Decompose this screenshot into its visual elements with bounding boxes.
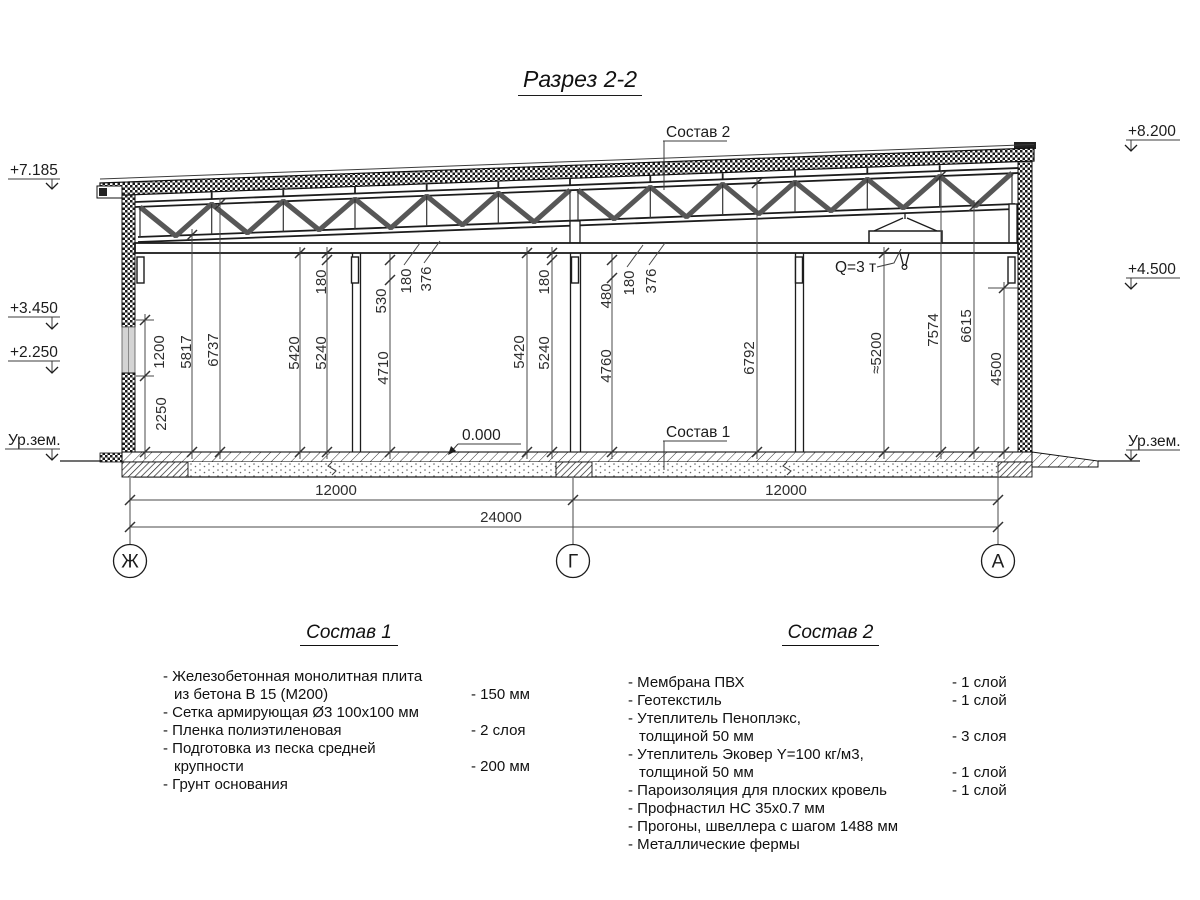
list-item: - Мембрана ПВХ - 1 слой: [628, 674, 1008, 692]
dim-text: 1200: [151, 335, 168, 368]
axis-markers: Ж Г А: [114, 545, 1015, 578]
zero-level-label: 0.000: [462, 427, 501, 444]
column-anchor: [1008, 257, 1015, 283]
sostav2-title: Состав 2: [653, 624, 1008, 642]
elevation-label: Ур.зем.: [1128, 433, 1181, 450]
list-item: - Подготовка из песка средней крупности …: [163, 740, 535, 776]
section-sheet: Разрез 2-2: [0, 0, 1200, 900]
crane-capacity-label: Q=3 т: [835, 259, 876, 276]
floor-slab: [122, 452, 1098, 477]
left-wall: [122, 192, 135, 452]
truss-right: [578, 173, 1012, 221]
axis-label: Ж: [121, 552, 139, 573]
dim-text: 530: [373, 288, 390, 313]
sostav1-list: Состав 1 - Железобетонная монолитная пли…: [163, 624, 535, 794]
list-item: - Железобетонная монолитная плита из бет…: [163, 668, 535, 704]
list-item: - Утеплитель Эковер Y=100 кг/м3, толщино…: [628, 746, 1008, 782]
callout-label: Состав 2: [666, 124, 730, 141]
axis-label: Г: [568, 552, 578, 573]
elevation-mark-4500: +4.500: [1125, 261, 1180, 289]
elevation-mark-3450: +3.450: [8, 300, 60, 329]
dim-text: 376: [418, 266, 435, 291]
right-wall: [1014, 142, 1036, 452]
dim-text: 2250: [153, 397, 170, 430]
dim-text: 180: [398, 268, 415, 293]
dim-text: 5420: [286, 336, 303, 369]
column-anchor: [572, 257, 579, 283]
horizontal-dimensions: 12000 12000 24000: [125, 472, 1003, 544]
dim-text: 4760: [598, 349, 615, 382]
dim-text: 4500: [988, 352, 1005, 385]
list-item: - Пленка полиэтиленовая - 2 слоя: [163, 722, 535, 740]
ramp: [1032, 452, 1098, 467]
elevation-mark-ground-right: Ур.зем.: [1125, 433, 1181, 460]
elevation-label: +7.185: [10, 162, 58, 179]
elevation-mark-ground-left: Ур.зем.: [5, 432, 61, 460]
zero-level-mark: 0.000: [448, 427, 521, 455]
dim-text: 5420: [511, 335, 528, 368]
callout-label: Состав 1: [666, 424, 730, 441]
dim-text: 180: [621, 270, 638, 295]
dim-text: 180: [536, 269, 553, 294]
elevation-label: +3.450: [10, 300, 58, 317]
dim-text: 480: [598, 283, 615, 308]
elevation-label: +2.250: [10, 344, 58, 361]
dim-text: 7574: [925, 313, 942, 346]
list-item: - Профнастил НС 35х0.7 мм: [628, 800, 1008, 818]
column-anchor: [352, 257, 359, 283]
dim-text: 376: [643, 268, 660, 293]
list-item: - Прогоны, швеллера с шагом 1488 мм: [628, 818, 1008, 836]
dim-text: 12000: [315, 482, 357, 499]
axis-label: А: [992, 552, 1005, 573]
dim-text: 6615: [958, 309, 975, 342]
dim-text: 24000: [480, 509, 522, 526]
truss-left: [140, 190, 570, 237]
dim-text: ≈5200: [868, 332, 885, 374]
list-item: - Грунт основания: [163, 776, 535, 794]
dim-text: 4710: [375, 351, 392, 384]
sostav1-title: Состав 1: [163, 624, 535, 642]
dim-text: 5240: [313, 336, 330, 369]
dim-text: 12000: [765, 482, 807, 499]
foundation-center: [556, 462, 592, 477]
elevation-mark-2250: +2.250: [8, 344, 60, 373]
elevation-mark-7185: +7.185: [8, 162, 60, 189]
dim-text: 6792: [741, 341, 758, 374]
sostav2-list: Состав 2 - Мембрана ПВХ - 1 слой - Геоте…: [628, 624, 1008, 854]
dim-text: 5240: [536, 336, 553, 369]
elevation-label: Ур.зем.: [8, 432, 61, 449]
foundation-right: [998, 462, 1032, 477]
monorail-hoist: [869, 213, 942, 269]
elevation-mark-8200: +8.200: [1125, 123, 1180, 151]
dim-text: 6737: [205, 333, 222, 366]
foundation-left: [122, 462, 188, 477]
column-anchor: [137, 257, 144, 283]
list-item: - Металлические фермы: [628, 836, 1008, 854]
dim-text: 5817: [178, 335, 195, 368]
list-item: - Геотекстиль - 1 слой: [628, 692, 1008, 710]
elevation-label: +8.200: [1128, 123, 1176, 140]
column-anchor: [796, 257, 803, 283]
dim-text: 180: [313, 269, 330, 294]
elevation-label: +4.500: [1128, 261, 1176, 278]
list-item: - Утеплитель Пеноплэкс, толщиной 50 мм -…: [628, 710, 1008, 746]
list-item: - Сетка армирующая Ø3 100х100 мм: [163, 704, 535, 722]
list-item: - Пароизоляция для плоских кровель - 1 с…: [628, 782, 1008, 800]
